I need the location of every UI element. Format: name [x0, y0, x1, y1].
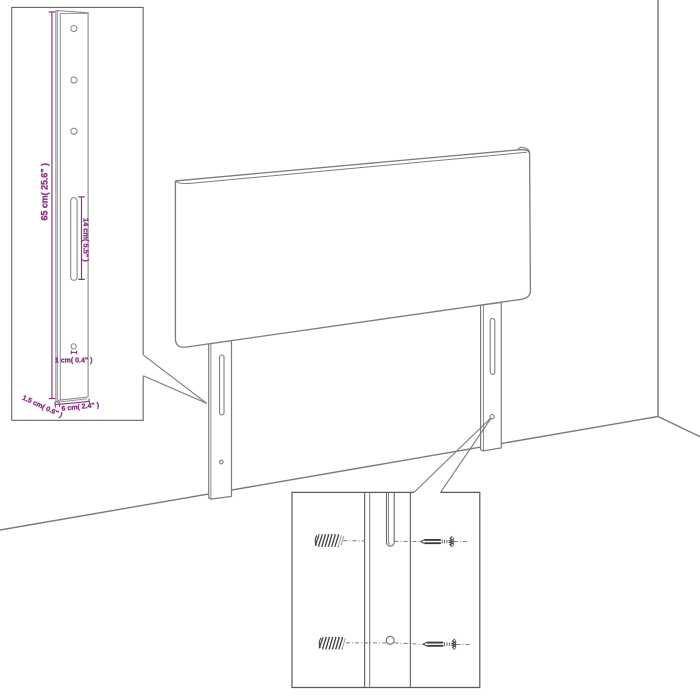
svg-text:1 cm( 0.4" ): 1 cm( 0.4" ): [55, 358, 93, 365]
svg-text:65 cm( 25.6" ): 65 cm( 25.6" ): [39, 163, 49, 221]
svg-text:14 cm( 5.5" ): 14 cm( 5.5" ): [81, 218, 90, 262]
